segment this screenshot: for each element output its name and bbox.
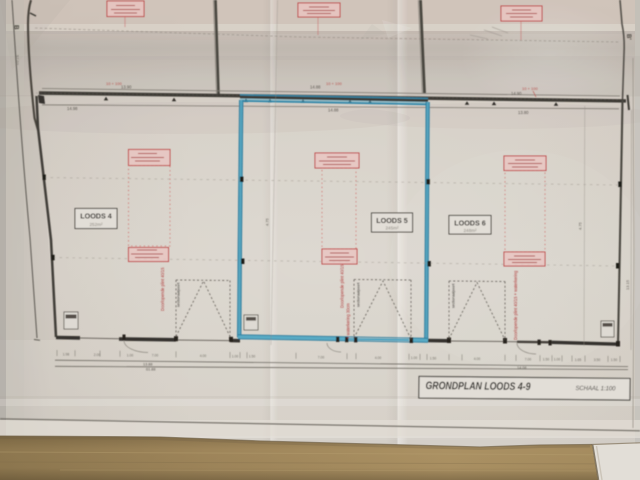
svg-text:B: B [13,25,20,30]
svg-text:2.00: 2.00 [94,353,101,357]
svg-text:1.00: 1.00 [232,354,239,358]
svg-text:1.00: 1.00 [127,353,134,357]
svg-text:7.00: 7.00 [318,355,325,359]
svg-text:245m²: 245m² [385,226,398,231]
svg-text:1.00: 1.00 [554,358,561,362]
svg-text:14.98: 14.98 [67,106,78,111]
svg-text:13.80: 13.80 [518,110,529,115]
svg-text:1.50: 1.50 [543,358,550,362]
svg-text:14.88: 14.88 [328,108,339,113]
svg-text:13.88: 13.88 [143,363,153,367]
svg-text:LOODS 6: LOODS 6 [454,219,486,228]
svg-text:LOODS 5: LOODS 5 [376,216,408,225]
svg-text:14.08: 14.08 [517,366,527,370]
svg-text:4.75: 4.75 [578,221,583,230]
svg-text:1.50: 1.50 [249,355,256,359]
svg-text:7.00: 7.00 [152,354,159,358]
svg-text:10 + 100: 10 + 100 [106,81,122,86]
svg-text:1.50: 1.50 [430,356,437,360]
svg-text:Doorlopende plint 40/15: Doorlopende plint 40/15 [160,267,165,311]
svg-text:252m²: 252m² [89,222,102,227]
svg-text:sectionaalpoort: sectionaalpoort [357,283,361,307]
svg-text:57.02: 57.02 [15,55,20,66]
svg-text:4.00: 4.00 [200,354,207,358]
svg-text:SCHAAL 1:100: SCHAAL 1:100 [575,385,616,392]
svg-text:14.90: 14.90 [511,91,522,96]
svg-text:3.50: 3.50 [594,358,601,362]
svg-text:61.88: 61.88 [146,368,156,372]
svg-text:sectionaalpoort: sectionaalpoort [452,284,456,308]
svg-text:4.00: 4.00 [375,356,382,360]
svg-text:13.15: 13.15 [625,279,630,290]
svg-text:Doorlopende plint 40/15: Doorlopende plint 40/15 [340,264,345,308]
svg-text:1.00: 1.00 [411,356,418,360]
svg-text:GRONDPLAN LOODS 4-9: GRONDPLAN LOODS 4-9 [425,380,530,393]
svg-text:B': B' [625,34,631,40]
svg-text:Doorlopende plint 40/15 + wate: Doorlopende plint 40/15 + waterkering [513,270,518,340]
svg-text:4.75: 4.75 [265,217,270,226]
svg-text:7.00: 7.00 [525,357,532,361]
svg-text:10 + 100: 10 + 100 [522,86,538,91]
svg-text:1.98: 1.98 [63,353,70,357]
svg-text:LOODS 4: LOODS 4 [80,212,112,221]
svg-text:13.90: 13.90 [121,85,132,90]
svg-text:14.88: 14.88 [310,85,321,90]
svg-text:sectionaalpoort: sectionaalpoort [177,283,181,307]
svg-text:1.50: 1.50 [611,358,618,362]
svg-text:248m²: 248m² [463,228,476,233]
svg-text:4.00: 4.00 [474,357,481,361]
svg-text:+ waterkering 30cm: + waterkering 30cm [346,303,351,339]
svg-text:1.65: 1.65 [575,358,582,362]
svg-text:10 + 100: 10 + 100 [326,81,342,86]
